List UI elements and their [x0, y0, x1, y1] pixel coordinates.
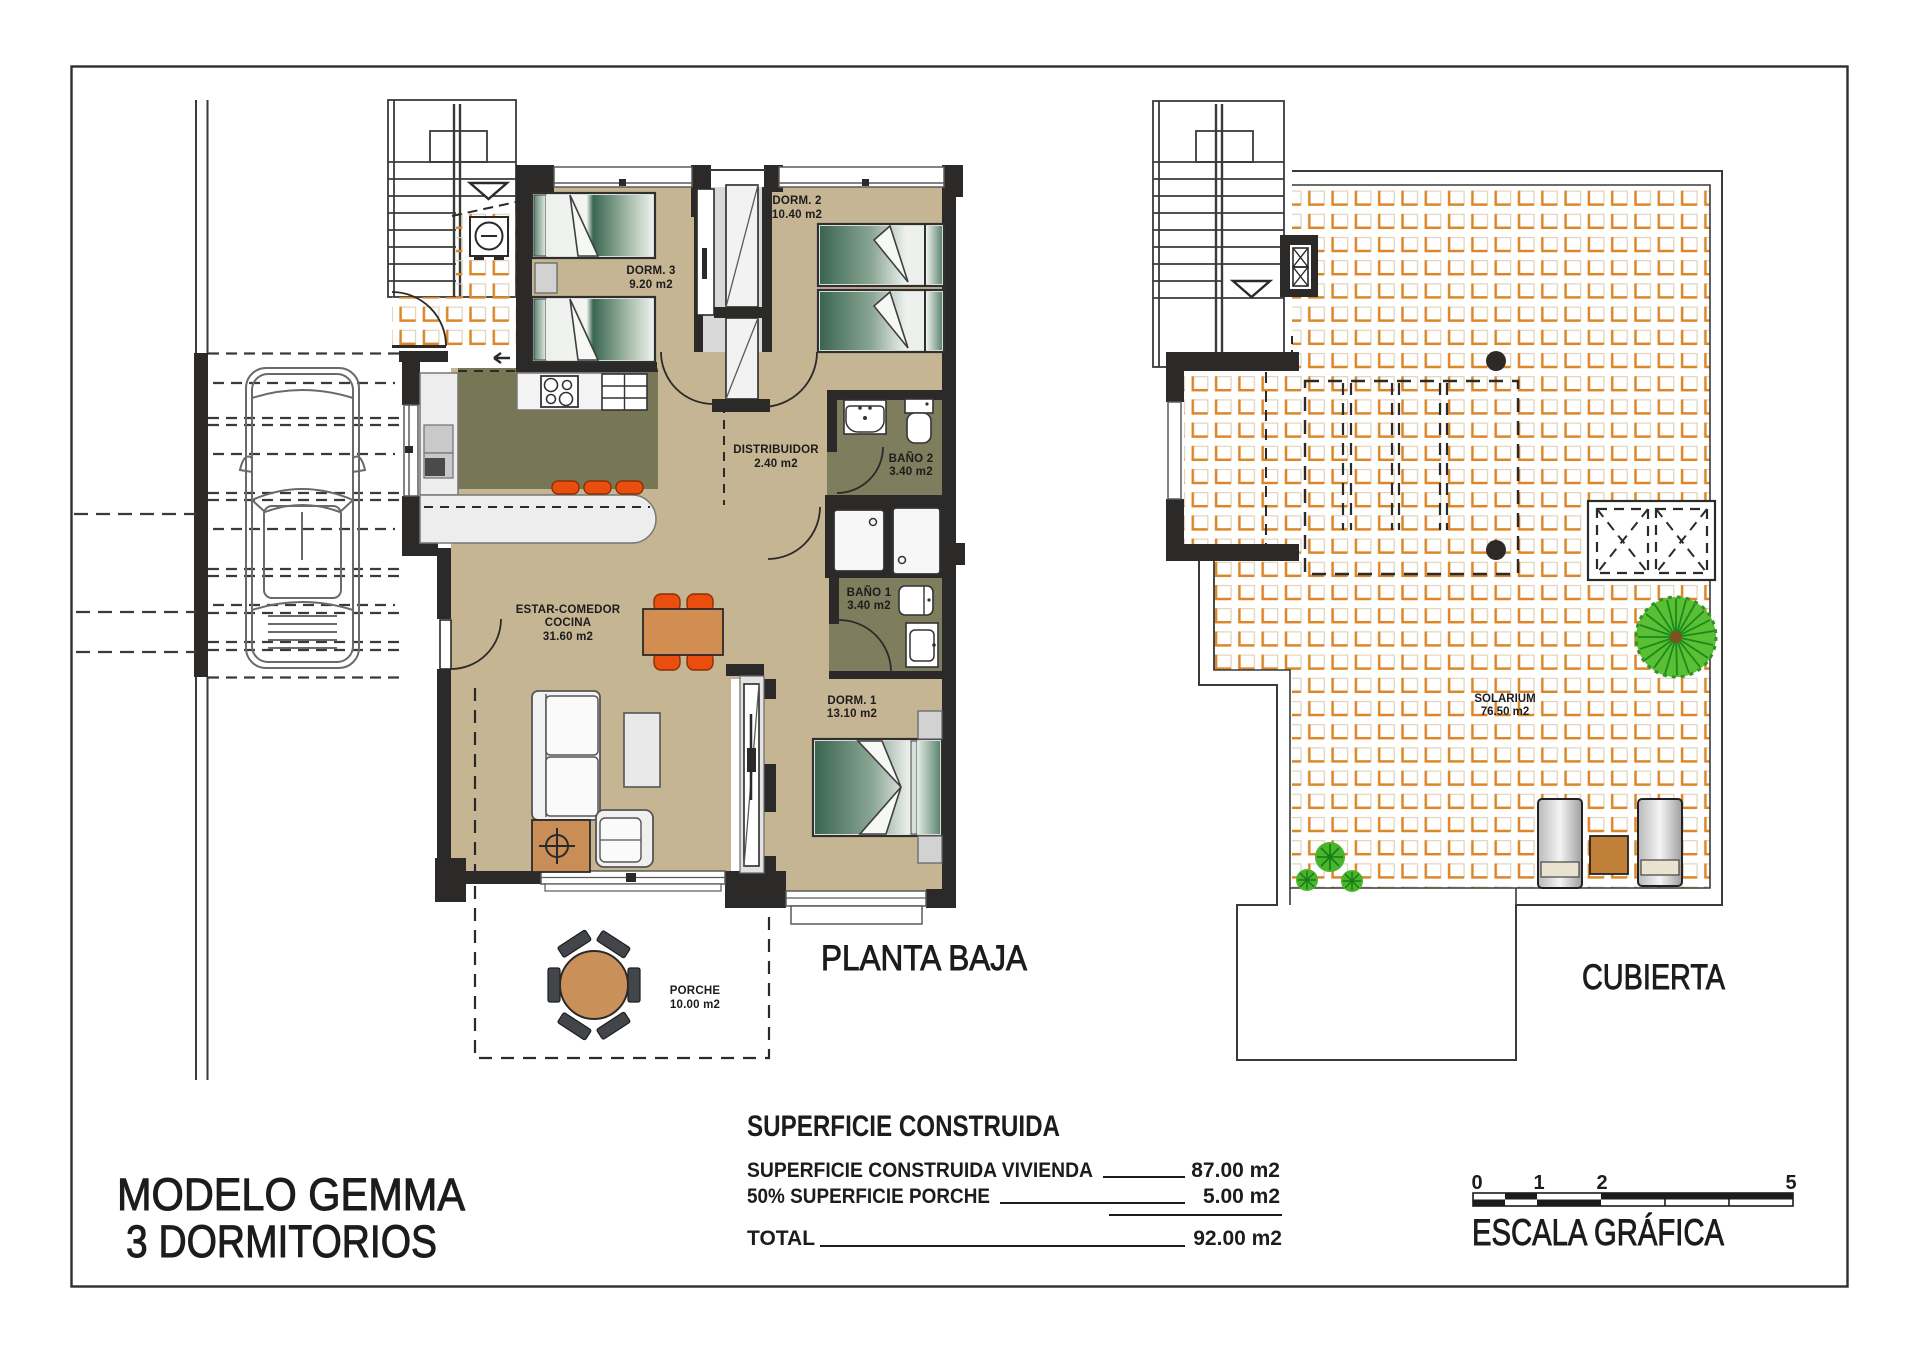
svg-text:10.00 m2: 10.00 m2	[670, 999, 720, 1011]
svg-text:DISTRIBUIDOR: DISTRIBUIDOR	[733, 444, 819, 456]
svg-text:76.50 m2: 76.50 m2	[1481, 706, 1530, 718]
svg-text:87.00 m2: 87.00 m2	[1191, 1159, 1280, 1182]
svg-text:SUPERFICIE CONSTRUIDA VIVIENDA: SUPERFICIE CONSTRUIDA VIVIENDA	[747, 1159, 1093, 1182]
svg-text:50% SUPERFICIE PORCHE: 50% SUPERFICIE PORCHE	[747, 1185, 990, 1208]
svg-text:1: 1	[1533, 1172, 1544, 1194]
svg-text:0: 0	[1471, 1172, 1482, 1194]
svg-text:BAÑO 1: BAÑO 1	[847, 586, 892, 599]
svg-text:SUPERFICIE CONSTRUIDA: SUPERFICIE CONSTRUIDA	[747, 1110, 1060, 1143]
svg-text:3.40 m2: 3.40 m2	[889, 466, 933, 478]
svg-text:DORM. 2: DORM. 2	[772, 195, 821, 207]
svg-text:MODELO GEMMA: MODELO GEMMA	[117, 1169, 465, 1220]
svg-text:13.10 m2: 13.10 m2	[827, 708, 877, 720]
svg-text:TOTAL: TOTAL	[747, 1227, 815, 1250]
svg-text:3.40 m2: 3.40 m2	[847, 600, 891, 612]
svg-text:PORCHE: PORCHE	[670, 985, 721, 997]
svg-text:10.40 m2: 10.40 m2	[772, 209, 822, 221]
svg-text:CUBIERTA: CUBIERTA	[1582, 958, 1726, 997]
svg-text:SOLARIUM: SOLARIUM	[1474, 693, 1535, 705]
svg-text:5.00 m2: 5.00 m2	[1203, 1185, 1280, 1208]
svg-text:2: 2	[1596, 1172, 1607, 1194]
svg-text:9.20 m2: 9.20 m2	[629, 279, 673, 291]
svg-text:31.60 m2: 31.60 m2	[543, 631, 593, 643]
svg-text:DORM. 3: DORM. 3	[626, 265, 675, 277]
svg-text:ESCALA GRÁFICA: ESCALA GRÁFICA	[1472, 1212, 1724, 1253]
svg-text:5: 5	[1785, 1172, 1796, 1194]
svg-text:BAÑO 2: BAÑO 2	[889, 452, 934, 465]
svg-text:2.40 m2: 2.40 m2	[754, 458, 798, 470]
svg-text:3 DORMITORIOS: 3 DORMITORIOS	[126, 1216, 437, 1267]
svg-text:92.00 m2: 92.00 m2	[1193, 1227, 1282, 1250]
svg-text:COCINA: COCINA	[545, 617, 592, 629]
svg-text:DORM. 1: DORM. 1	[827, 695, 877, 707]
svg-text:PLANTA BAJA: PLANTA BAJA	[821, 939, 1028, 978]
svg-text:ESTAR-COMEDOR: ESTAR-COMEDOR	[516, 604, 621, 616]
